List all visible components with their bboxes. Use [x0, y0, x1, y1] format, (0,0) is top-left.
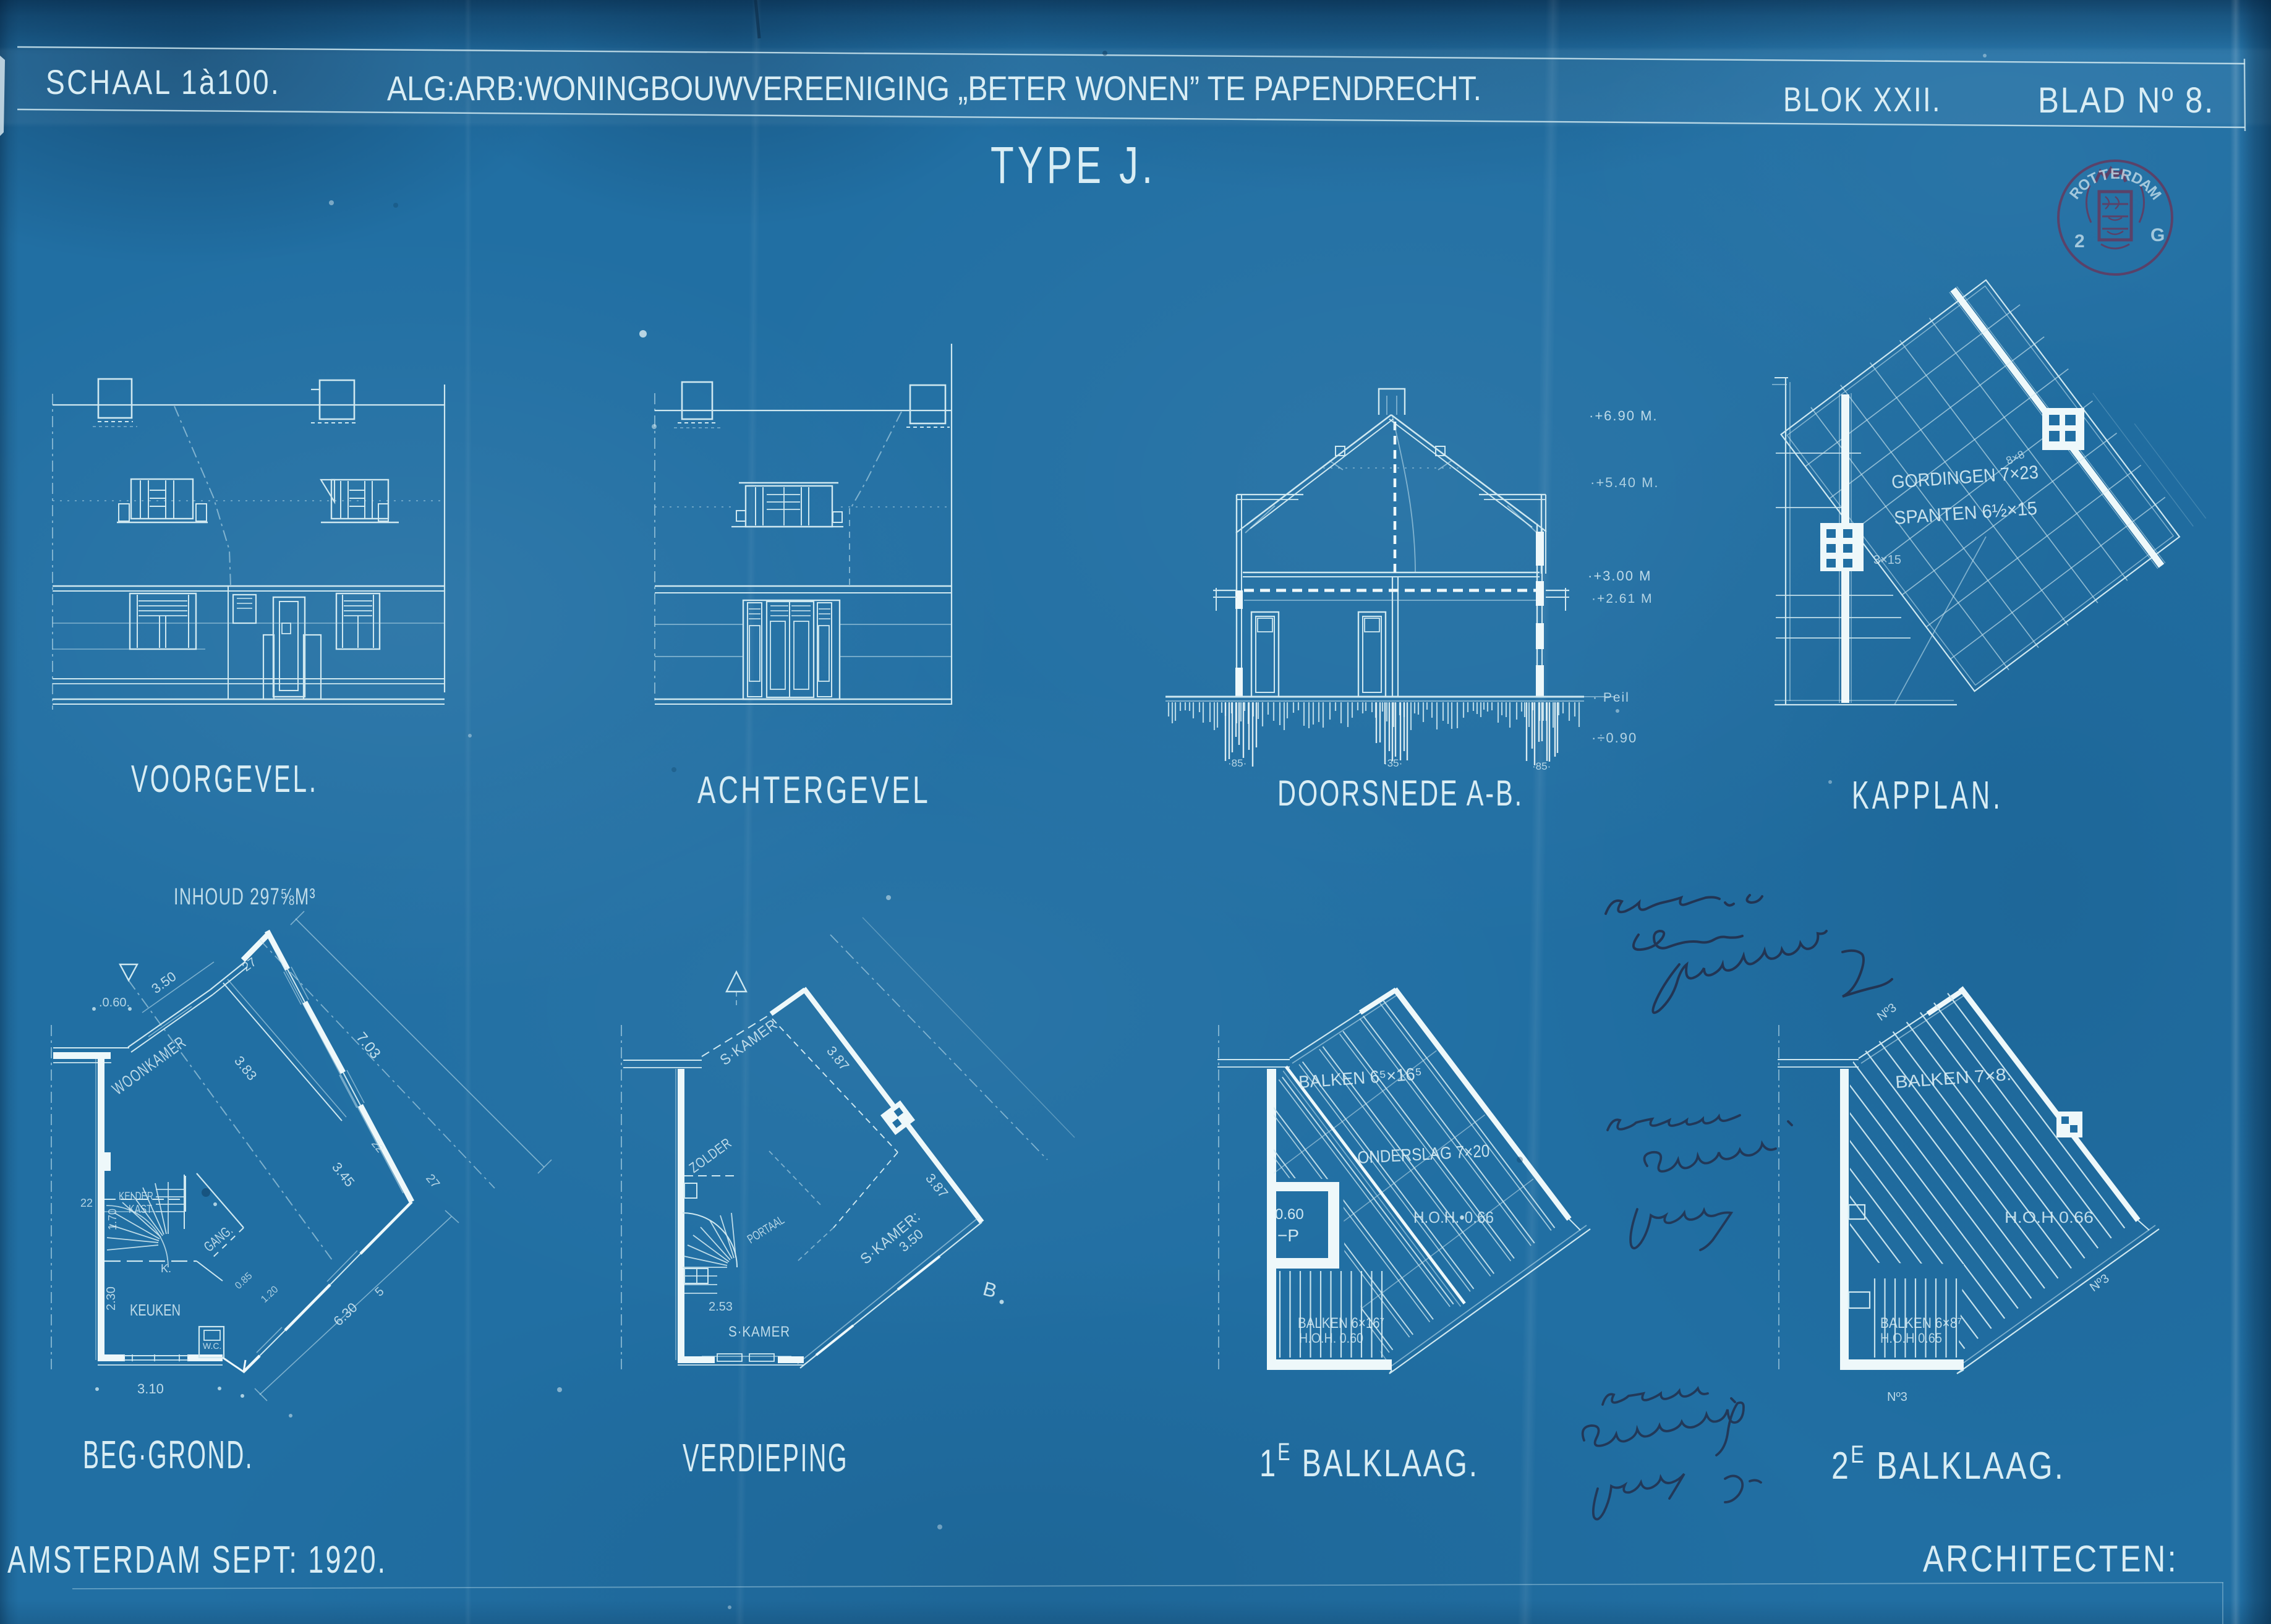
- svg-text:.0.60.: .0.60.: [99, 996, 130, 1010]
- svg-text:K.: K.: [161, 1262, 171, 1275]
- svg-text:TYPE J.: TYPE J.: [991, 136, 1156, 194]
- svg-text:2E BALKLAAG.: 2E BALKLAAG.: [1831, 1441, 2065, 1487]
- svg-text:T: T: [2098, 166, 2111, 185]
- svg-text:WOONKAMER: WOONKAMER: [109, 1032, 190, 1099]
- svg-text:1E BALKLAAG.: 1E BALKLAAG.: [1259, 1439, 1479, 1485]
- svg-text:·+3.00 M: ·+3.00 M: [1588, 568, 1651, 584]
- svg-text:1.70: 1.70: [106, 1209, 119, 1230]
- svg-text:·85·: ·85·: [1228, 757, 1246, 769]
- svg-text:3.45: 3.45: [329, 1159, 357, 1189]
- svg-text:BALKEN 6×8⁷: BALKEN 6×8⁷: [1880, 1315, 1962, 1332]
- svg-text:BALKEN 7×8.: BALKEN 7×8.: [1894, 1065, 2012, 1092]
- svg-text:S·KAMER: S·KAMER: [717, 1016, 781, 1069]
- svg-text:VOORGEVEL.: VOORGEVEL.: [131, 758, 318, 801]
- svg-text:VERDIEPING: VERDIEPING: [683, 1435, 848, 1480]
- svg-text:3×15: 3×15: [1873, 553, 1901, 567]
- svg-text:·÷0.90: ·÷0.90: [1591, 730, 1637, 746]
- svg-text:PORTAAL: PORTAAL: [745, 1214, 787, 1247]
- svg-text:BALKEN 6⁵×16⁵: BALKEN 6⁵×16⁵: [1298, 1064, 1423, 1092]
- svg-text:·35·: ·35·: [1384, 757, 1402, 769]
- svg-text:E: E: [2110, 166, 2120, 182]
- svg-text:H.O.H.•0.66: H.O.H.•0.66: [1413, 1208, 1494, 1227]
- svg-text:Nº3: Nº3: [2087, 1272, 2112, 1295]
- svg-text:0.60: 0.60: [1275, 1206, 1304, 1223]
- svg-text:W.C.: W.C.: [203, 1341, 221, 1351]
- svg-text:ACHTERGEVEL: ACHTERGEVEL: [697, 769, 931, 812]
- svg-text:ARCHITECTEN:: ARCHITECTEN:: [1923, 1538, 2178, 1579]
- svg-text:2.30: 2.30: [104, 1286, 118, 1311]
- svg-text:2: 2: [2074, 231, 2085, 252]
- svg-text:H.O.H 0.66: H.O.H 0.66: [2005, 1208, 2094, 1227]
- svg-text:1.20: 1.20: [259, 1284, 280, 1305]
- svg-text:INHOUD 297⅝M³: INHOUD 297⅝M³: [174, 884, 316, 910]
- svg-text:DOORSNEDE A-B.: DOORSNEDE A-B.: [1277, 773, 1523, 814]
- svg-text:KELDER: KELDER: [119, 1190, 153, 1202]
- svg-text:H.O.H. 0.60: H.O.H. 0.60: [1299, 1330, 1363, 1346]
- svg-text:Nº3: Nº3: [1875, 1001, 1899, 1024]
- svg-text:3.10: 3.10: [137, 1381, 164, 1397]
- svg-text:·+6.90 M.: ·+6.90 M.: [1589, 408, 1658, 423]
- svg-text:ONDERSLAG 7×20: ONDERSLAG 7×20: [1357, 1141, 1490, 1167]
- svg-text:·85·: ·85·: [1532, 760, 1551, 772]
- svg-text:22: 22: [80, 1197, 93, 1209]
- svg-text:BALKEN 6×16⁷: BALKEN 6×16⁷: [1298, 1315, 1384, 1332]
- svg-text:SCHAAL 1à100.: SCHAAL 1à100.: [46, 62, 281, 101]
- svg-text:GANG.: GANG.: [201, 1222, 236, 1254]
- svg-text:3.50: 3.50: [148, 969, 179, 997]
- svg-text:S·KAMER: S·KAMER: [728, 1324, 790, 1340]
- svg-text:27: 27: [423, 1171, 442, 1191]
- svg-text:· Peil: · Peil: [1593, 691, 1630, 705]
- svg-text:BLAD Nº 8.: BLAD Nº 8.: [2038, 80, 2215, 121]
- svg-text:ALG:ARB:WONINGBOUWVEREENIGING: ALG:ARB:WONINGBOUWVEREENIGING „BETER WON…: [387, 69, 1481, 108]
- svg-text:B: B: [981, 1277, 999, 1302]
- svg-text:0.85: 0.85: [233, 1270, 254, 1291]
- svg-text:5: 5: [372, 1285, 386, 1299]
- svg-text:G: G: [2150, 225, 2165, 245]
- svg-text:BLOK XXII.: BLOK XXII.: [1783, 80, 1941, 119]
- svg-text:−P: −P: [1277, 1226, 1299, 1245]
- svg-text:KEUKEN: KEUKEN: [130, 1301, 181, 1319]
- svg-text:BEG·GROND.: BEG·GROND.: [83, 1432, 254, 1477]
- svg-text:2.53: 2.53: [709, 1300, 733, 1314]
- svg-text:H.O.H 0.65: H.O.H 0.65: [1880, 1330, 1942, 1346]
- svg-text:KAST: KAST: [129, 1203, 152, 1215]
- svg-text:ZOLDER: ZOLDER: [686, 1134, 735, 1176]
- svg-text:KAPPLAN.: KAPPLAN.: [1852, 773, 2003, 817]
- svg-text:SPANTEN 6½×15: SPANTEN 6½×15: [1893, 498, 2038, 529]
- svg-text:AMSTERDAM SEPT: 1920.: AMSTERDAM SEPT: 1920.: [7, 1539, 387, 1581]
- svg-text:Nº3: Nº3: [1887, 1390, 1907, 1404]
- svg-text:·+2.61 M: ·+2.61 M: [1591, 592, 1653, 606]
- svg-text:·+5.40 M.: ·+5.40 M.: [1590, 475, 1660, 490]
- svg-text:7.03: 7.03: [352, 1029, 383, 1062]
- svg-text:3.83: 3.83: [231, 1053, 260, 1083]
